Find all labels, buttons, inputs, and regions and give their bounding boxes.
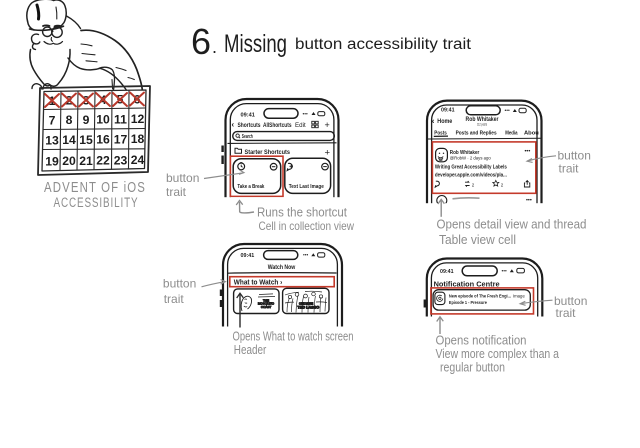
- svg-text:•••: •••: [525, 149, 531, 155]
- svg-text:trait: trait: [556, 306, 577, 320]
- svg-text:15: 15: [79, 133, 93, 147]
- svg-text:‹: ‹: [232, 120, 235, 129]
- svg-text:New episode of The Fresh Engi.: New episode of The Fresh Engi...: [449, 294, 511, 299]
- svg-text:Episode 1 - Pressure: Episode 1 - Pressure: [449, 300, 487, 305]
- svg-text:+: +: [325, 148, 331, 159]
- svg-text:@RobW · 2 days ago: @RobW · 2 days ago: [450, 155, 491, 160]
- svg-text:regular button: regular button: [440, 360, 505, 375]
- svg-text:Opens What to watch screen: Opens What to watch screen: [233, 330, 354, 344]
- svg-text:trait: trait: [164, 292, 185, 306]
- svg-text:Edit: Edit: [295, 122, 306, 129]
- svg-text:Opens notification: Opens notification: [436, 332, 527, 347]
- svg-text:9: 9: [83, 113, 90, 127]
- svg-text:Cell in collection view: Cell in collection view: [259, 219, 355, 233]
- svg-text:developer.apple.com/videos/pla: developer.apple.com/videos/pla...: [435, 173, 507, 179]
- svg-text:button: button: [558, 149, 591, 163]
- svg-text:Media: Media: [505, 130, 518, 136]
- svg-text:18: 18: [131, 132, 145, 146]
- svg-text:13: 13: [45, 134, 59, 148]
- svg-text:Image: Image: [513, 293, 526, 298]
- svg-text:Table view cell: Table view cell: [439, 232, 516, 247]
- svg-text:‹: ‹: [432, 117, 435, 126]
- svg-text:14: 14: [62, 133, 76, 147]
- svg-text:Home: Home: [437, 119, 453, 125]
- svg-text:Missing: Missing: [224, 30, 287, 58]
- svg-text:Text Last Image: Text Last Image: [289, 184, 324, 190]
- svg-text:22: 22: [96, 154, 110, 168]
- svg-text:20: 20: [62, 154, 76, 168]
- svg-text:button: button: [163, 276, 196, 290]
- svg-text:24: 24: [131, 153, 145, 167]
- svg-text:•••: •••: [505, 108, 511, 114]
- svg-text:Opens detail view and thread: Opens detail view and thread: [437, 217, 587, 232]
- svg-text:23: 23: [114, 154, 128, 168]
- svg-text:2: 2: [472, 183, 475, 188]
- svg-text:21: 21: [79, 154, 93, 168]
- svg-text:•••: •••: [303, 253, 309, 259]
- svg-text:19: 19: [45, 155, 59, 169]
- svg-text:button: button: [166, 171, 199, 185]
- svg-text:7: 7: [49, 114, 56, 128]
- svg-text:09:41: 09:41: [241, 253, 255, 259]
- svg-text:10: 10: [96, 113, 110, 127]
- svg-text:ACCESSIBILITY: ACCESSIBILITY: [54, 195, 139, 210]
- svg-text:trait: trait: [559, 162, 580, 176]
- svg-text:AllShortcuts: AllShortcuts: [263, 122, 292, 129]
- svg-text:Runs the shortcut: Runs the shortcut: [257, 205, 347, 220]
- svg-text:What to Watch ›: What to Watch ›: [234, 278, 283, 287]
- svg-text:Take a Break: Take a Break: [237, 184, 264, 190]
- svg-text:COAST: COAST: [261, 305, 272, 309]
- svg-text:09:41: 09:41: [441, 108, 455, 114]
- svg-text:11: 11: [114, 113, 127, 127]
- svg-text:Posts: Posts: [434, 130, 447, 136]
- svg-text:Watch Now: Watch Now: [268, 264, 296, 271]
- svg-text:6: 6: [191, 21, 211, 62]
- svg-text:.: .: [212, 37, 217, 57]
- svg-text:Writing Great Accessibility La: Writing Great Accessibility Labels: [435, 165, 507, 171]
- svg-text:Shortcuts: Shortcuts: [238, 122, 261, 129]
- svg-text:Posts and Replies: Posts and Replies: [456, 130, 497, 136]
- svg-text:Starter Shortcuts: Starter Shortcuts: [245, 149, 291, 156]
- svg-text:button accessibility trait: button accessibility trait: [295, 36, 472, 53]
- svg-text:09:41: 09:41: [241, 112, 255, 118]
- svg-text:•••: •••: [303, 112, 309, 118]
- svg-text:112 posts: 112 posts: [477, 122, 487, 126]
- svg-text:8: 8: [66, 113, 73, 127]
- svg-text:Header: Header: [234, 343, 266, 357]
- svg-text:Abou: Abou: [524, 130, 539, 136]
- svg-text:16: 16: [96, 133, 110, 147]
- svg-text:Notification Centre: Notification Centre: [434, 279, 500, 288]
- svg-text:trait: trait: [166, 185, 187, 199]
- svg-text:09:41: 09:41: [440, 269, 454, 275]
- svg-text:ADVENT OF iOS: ADVENT OF iOS: [44, 179, 146, 196]
- svg-text:Search: Search: [242, 134, 253, 140]
- svg-text:+: +: [325, 120, 330, 130]
- svg-text:•••: •••: [502, 268, 508, 274]
- svg-text:12: 12: [131, 112, 145, 126]
- svg-text:•••: •••: [526, 198, 532, 204]
- svg-text:TED LASSO: TED LASSO: [298, 306, 320, 310]
- svg-text:17: 17: [114, 133, 128, 147]
- svg-text:2: 2: [501, 183, 504, 188]
